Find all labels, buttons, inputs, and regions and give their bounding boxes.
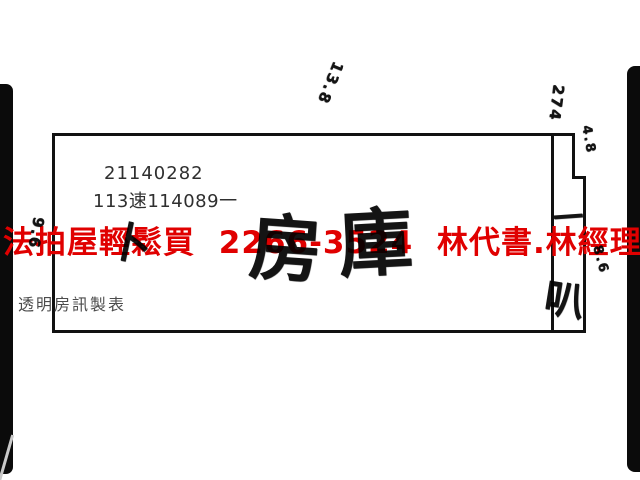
scan-edge-bar-left [0, 84, 13, 474]
handwritten-column-char: 叭 [541, 265, 590, 329]
plan-wall-bottom [52, 330, 586, 333]
case-number: 21140282 [104, 163, 204, 184]
plan-wall-top [52, 133, 575, 136]
handwritten-room-label-left: 房 [246, 188, 325, 298]
plan-wall-right-upper [572, 133, 575, 179]
scan-edge-bar-right [627, 66, 640, 472]
measurement-notch: 4.8 [579, 124, 599, 155]
measurement-top-right: 274 [545, 83, 567, 122]
handwritten-room-label-right: 庫 [335, 182, 414, 293]
maker-label: 透明房訊製表 [18, 291, 126, 315]
file-number: 113速114089一 [93, 187, 238, 213]
handwritten-column-dash: 一 [552, 192, 585, 238]
measurement-top: 13.8 [314, 59, 348, 107]
scanned-floorplan-page: 21140282 113速114089一 透明房訊製表 房 庫 叭 一 卜 13… [0, 0, 640, 480]
